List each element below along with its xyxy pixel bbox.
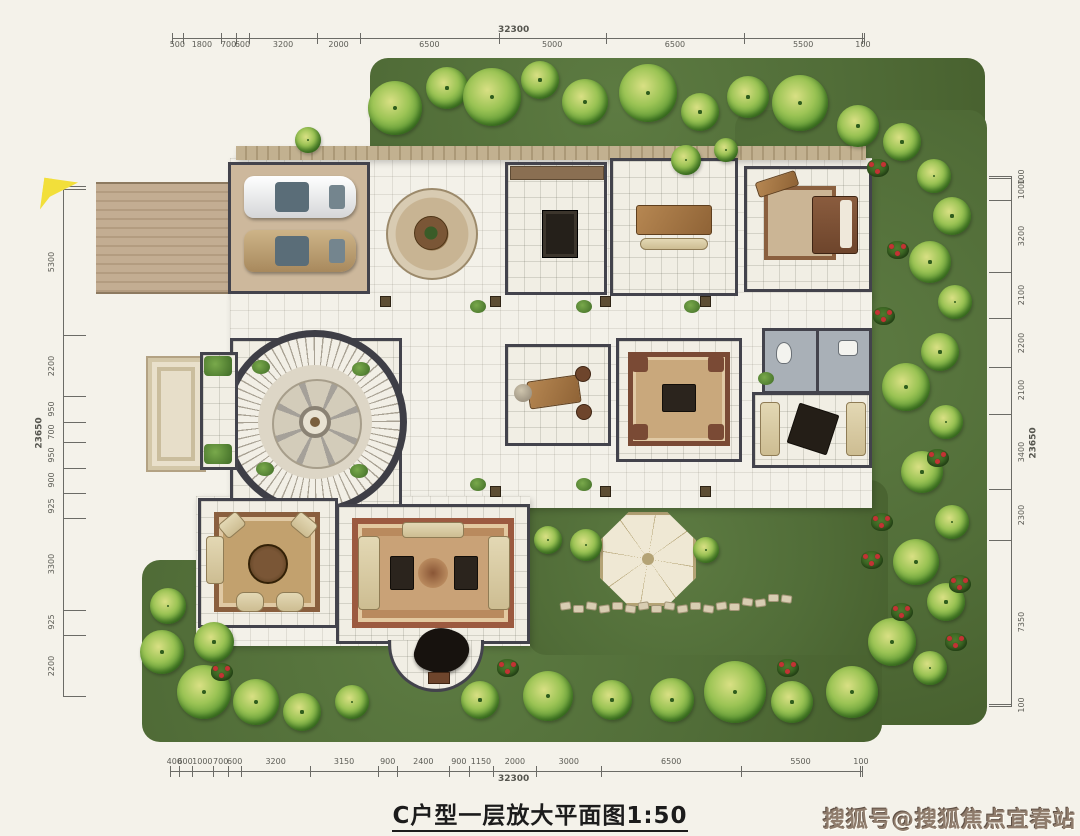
tree-icon [461, 681, 499, 719]
dim-label: 5300 [48, 248, 56, 276]
dim-tick [989, 200, 1012, 201]
path-stone [780, 594, 792, 603]
dim-tick [860, 766, 861, 777]
flower-icon [869, 162, 874, 167]
tree-icon [521, 61, 559, 99]
tree-icon [714, 138, 738, 162]
flower-icon [499, 662, 504, 667]
dim-line [172, 38, 864, 39]
dim-label: 950 [48, 441, 56, 469]
dim-label: 3200 [1018, 222, 1026, 250]
highlight-marker [40, 178, 78, 214]
dim-tick [989, 540, 1012, 541]
tree-icon [283, 693, 321, 731]
dim-tick [989, 414, 1012, 415]
dim-tick [469, 766, 470, 777]
flower-icon [881, 317, 886, 322]
dim-label: 2400 [409, 758, 437, 766]
path-stone [690, 602, 701, 610]
dim-tick [63, 442, 86, 443]
path-stone [612, 602, 623, 610]
flower-icon [225, 666, 230, 671]
tree-icon [619, 64, 677, 122]
flower-icon [785, 669, 790, 674]
shrub-icon [887, 241, 909, 259]
flower-icon [951, 578, 956, 583]
flower-icon [957, 585, 962, 590]
tree-icon [194, 622, 234, 662]
flower-icon [905, 606, 910, 611]
path-stone [651, 605, 662, 613]
tree-icon [140, 630, 184, 674]
dim-label: 2000 [325, 41, 353, 49]
dim-label: 925 [48, 492, 56, 520]
dim-label: 2200 [48, 352, 56, 380]
watermark: 搜狐号@搜狐焦点宜春站 [823, 802, 1076, 834]
dim-tick [310, 766, 311, 777]
tree-icon [693, 537, 719, 563]
path-stone [729, 603, 740, 611]
dim-total: 32300 [498, 774, 529, 784]
tree-icon [837, 105, 879, 147]
path-stone [624, 604, 636, 613]
dim-tick [360, 33, 361, 44]
dim-total: 23650 [35, 417, 45, 448]
dim-tick [192, 766, 193, 777]
dim-tick [63, 696, 86, 697]
dim-tick [989, 318, 1012, 319]
dim-label: 2200 [48, 652, 56, 680]
flower-icon [963, 578, 968, 583]
dim-label: 6500 [415, 41, 443, 49]
path-stone [637, 601, 649, 610]
dim-label: 2000 [501, 758, 529, 766]
dim-tick [63, 335, 86, 336]
flower-icon [947, 636, 952, 641]
flower-icon [863, 554, 868, 559]
dim-label: 900 [48, 466, 56, 494]
tree-icon [523, 671, 573, 721]
dim-tick [63, 493, 86, 494]
dim-tick [63, 518, 86, 519]
dim-label: 1000 [1018, 175, 1026, 203]
dim-label: 3200 [262, 758, 290, 766]
flower-icon [875, 310, 880, 315]
tree-icon [335, 685, 369, 719]
tree-icon [938, 285, 972, 319]
tree-icon [368, 81, 422, 135]
tree-icon [233, 679, 279, 725]
dim-line [1011, 176, 1012, 706]
path-stone [768, 594, 779, 602]
flower-icon [873, 516, 878, 521]
tree-icon [426, 67, 468, 109]
path-stone [573, 605, 584, 613]
dim-tick [317, 33, 318, 44]
tree-icon [933, 197, 971, 235]
flower-icon [791, 662, 796, 667]
dim-label: 100 [847, 758, 875, 766]
dim-tick [741, 766, 742, 777]
flower-icon [959, 636, 964, 641]
dim-label: 2100 [1018, 376, 1026, 404]
dim-tick [63, 635, 86, 636]
shrub-icon [871, 513, 893, 531]
shrub-icon [861, 551, 883, 569]
dim-tick [989, 367, 1012, 368]
dim-label: 100 [849, 41, 877, 49]
dim-tick [989, 704, 1012, 705]
dim-label: 2200 [1018, 329, 1026, 357]
dim-tick [397, 766, 398, 777]
tree-icon [882, 363, 930, 411]
dim-tick [989, 176, 1012, 177]
dim-label: 2100 [1018, 281, 1026, 309]
path-stone [754, 598, 766, 607]
tree-icon [935, 505, 969, 539]
dim-tick [989, 706, 1012, 707]
dim-tick [228, 766, 229, 777]
dim-label: 3000 [555, 758, 583, 766]
dim-label: 3400 [1018, 438, 1026, 466]
shrub-icon [777, 659, 799, 677]
dim-tick [536, 766, 537, 777]
tree-icon [562, 79, 608, 125]
path-stone [715, 601, 727, 610]
tree-icon [917, 159, 951, 193]
shrub-icon [497, 659, 519, 677]
flower-icon [941, 452, 946, 457]
tree-icon [826, 666, 878, 718]
tree-icon [921, 333, 959, 371]
tree-icon [704, 661, 766, 723]
flower-icon [929, 452, 934, 457]
flower-icon [893, 606, 898, 611]
dim-tick [606, 33, 607, 44]
tree-icon [909, 241, 951, 283]
flower-icon [875, 169, 880, 174]
dim-tick [63, 610, 86, 611]
dim-tick [170, 766, 171, 777]
page-title: C户型一层放大平面图1:50 [392, 803, 687, 832]
dim-label: 5000 [538, 41, 566, 49]
dim-label: 6500 [657, 758, 685, 766]
dim-label: 600 [228, 41, 256, 49]
path-stone [663, 601, 675, 610]
tree-icon [883, 123, 921, 161]
tree-icon [671, 145, 701, 175]
flower-icon [895, 251, 900, 256]
flower-icon [889, 244, 894, 249]
dim-total: 32300 [498, 25, 529, 35]
dim-tick [63, 422, 86, 423]
tree-icon [868, 618, 916, 666]
tree-icon [592, 680, 632, 720]
dim-line [170, 771, 862, 772]
flower-icon [875, 554, 880, 559]
dim-tick [63, 468, 86, 469]
flower-icon [953, 643, 958, 648]
tree-icon [570, 529, 602, 561]
shrub-icon [891, 603, 913, 621]
dim-total: 23650 [1029, 427, 1039, 458]
dim-tick [179, 766, 180, 777]
tree-icon [150, 588, 186, 624]
dim-label: 3300 [48, 550, 56, 578]
dim-tick [989, 178, 1012, 179]
path-stone [559, 601, 571, 610]
flower-icon [885, 516, 890, 521]
flower-icon [879, 523, 884, 528]
flower-icon [901, 244, 906, 249]
tree-icon [772, 75, 828, 131]
dim-label: 6500 [661, 41, 689, 49]
dim-label: 1150 [467, 758, 495, 766]
dim-label: 100 [1018, 691, 1026, 719]
path-stone [676, 604, 688, 613]
shrub-icon [945, 633, 967, 651]
dim-label: 1800 [188, 41, 216, 49]
tree-icon [534, 526, 562, 554]
dim-tick [601, 766, 602, 777]
dim-label: 2300 [1018, 501, 1026, 529]
dim-label: 3200 [269, 41, 297, 49]
dim-tick [989, 489, 1012, 490]
path-stone [585, 601, 597, 610]
path-stone [598, 604, 610, 613]
path-stone [702, 604, 714, 613]
dim-tick [449, 766, 450, 777]
tree-icon [295, 127, 321, 153]
dim-tick [493, 766, 494, 777]
flower-icon [511, 662, 516, 667]
path-stone [741, 597, 753, 606]
flower-icon [213, 666, 218, 671]
dim-tick [213, 766, 214, 777]
dim-label: 5500 [789, 41, 817, 49]
tree-icon [913, 651, 947, 685]
shrub-icon [873, 307, 895, 325]
dim-label: 900 [374, 758, 402, 766]
flower-icon [779, 662, 784, 667]
dim-label: 3150 [330, 758, 358, 766]
dim-tick [378, 766, 379, 777]
flower-icon [869, 561, 874, 566]
flower-icon [887, 310, 892, 315]
flower-icon [881, 162, 886, 167]
dim-tick [63, 396, 86, 397]
dim-label: 600 [221, 758, 249, 766]
tree-icon [727, 76, 769, 118]
shrub-icon [949, 575, 971, 593]
shrub-icon [211, 663, 233, 681]
dim-label: 5500 [787, 758, 815, 766]
dim-label: 925 [48, 608, 56, 636]
tree-icon [929, 405, 963, 439]
flower-icon [899, 613, 904, 618]
tree-icon [681, 93, 719, 131]
tree-icon [463, 68, 521, 126]
dim-tick [862, 766, 863, 777]
shrub-icon [867, 159, 889, 177]
dim-tick [989, 272, 1012, 273]
dim-tick [241, 766, 242, 777]
flower-icon [505, 669, 510, 674]
dim-tick [744, 33, 745, 44]
shrub-icon [927, 449, 949, 467]
tree-icon [893, 539, 939, 585]
tree-icon [650, 678, 694, 722]
tree-icon [771, 681, 813, 723]
flower-icon [219, 673, 224, 678]
floor-plan-image: 5001800700600320020006500500065005500100… [0, 0, 1080, 836]
flower-icon [935, 459, 940, 464]
dim-label: 7350 [1018, 608, 1026, 636]
